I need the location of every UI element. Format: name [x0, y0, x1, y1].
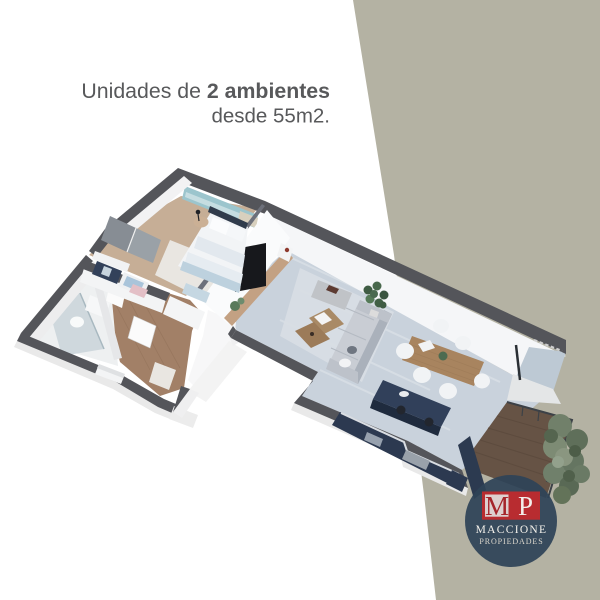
svg-text:PROPIEDADES: PROPIEDADES: [479, 537, 543, 546]
svg-text:M: M: [485, 491, 509, 521]
svg-text:Unidades de 2 ambientes: Unidades de 2 ambientes: [81, 79, 330, 103]
svg-text:P: P: [518, 491, 533, 521]
svg-text:desde 55m2.: desde 55m2.: [211, 105, 330, 128]
svg-text:MACCIONE: MACCIONE: [476, 524, 548, 536]
